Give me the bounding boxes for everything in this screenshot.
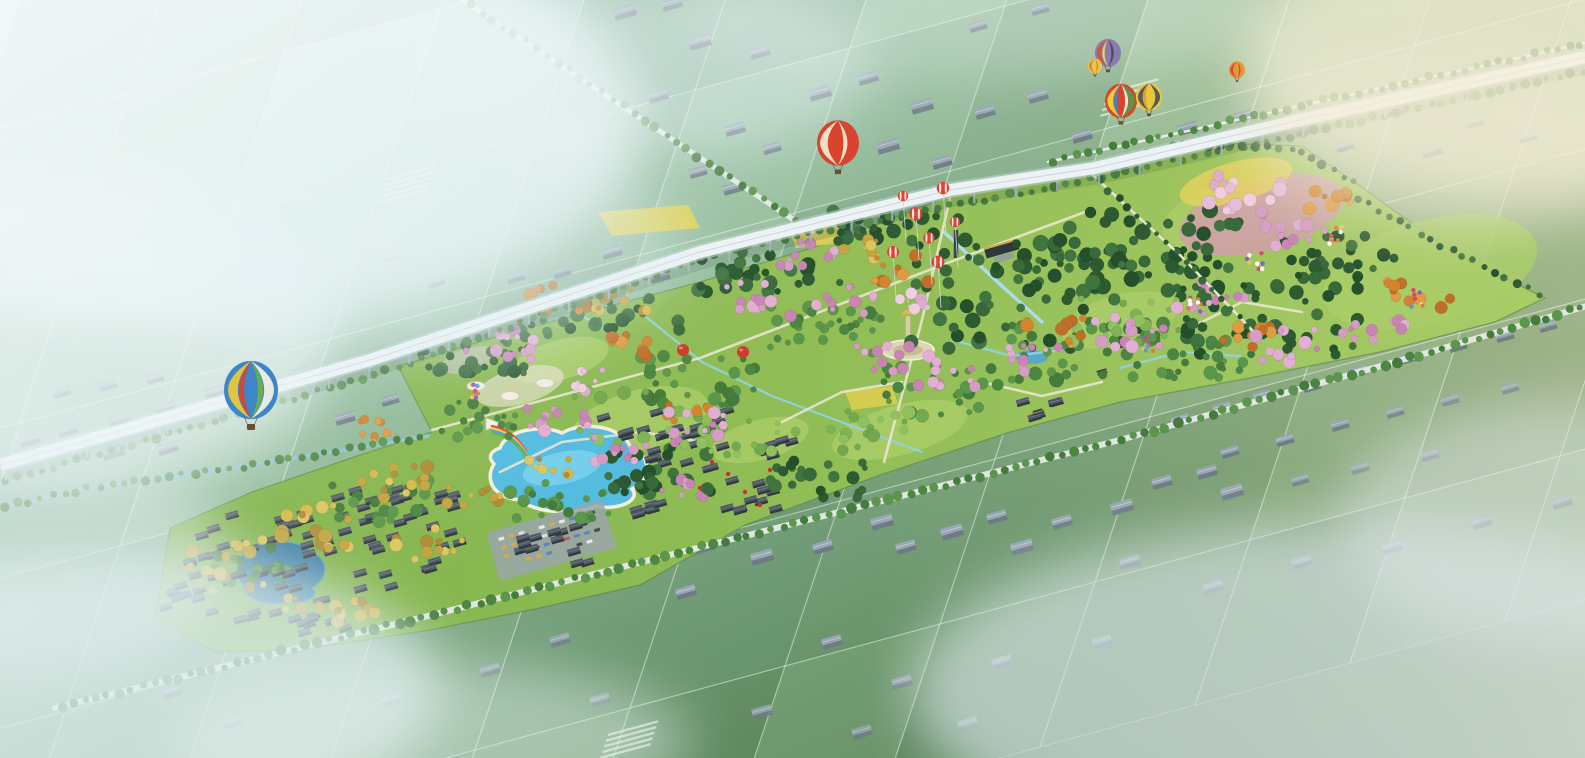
aerial-masterplan-rendering (0, 0, 1585, 758)
scene-svg (0, 0, 1585, 758)
